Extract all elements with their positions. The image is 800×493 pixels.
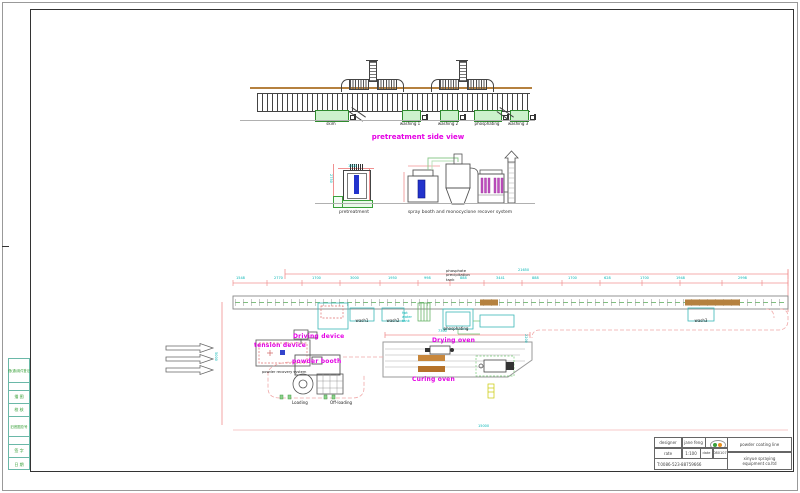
plan-label-wash2: wash2	[382, 319, 404, 324]
oven-outline	[383, 342, 532, 377]
dim-text: 2750	[329, 174, 333, 183]
curing-burner	[476, 356, 514, 376]
revision-row: 描 图	[9, 391, 29, 404]
tension-device-label: tension device	[254, 342, 306, 349]
chain-dim: 1948	[676, 276, 685, 280]
heated-segment-2	[685, 300, 740, 306]
logo-orange-dot	[718, 443, 722, 447]
tank-label-washing2: washing 2	[428, 122, 468, 127]
chain-dim: 1548	[236, 276, 245, 280]
booth-hood	[413, 170, 433, 176]
arrow-icon	[166, 344, 213, 353]
logo-cell	[705, 437, 728, 448]
border-mid-tick	[2, 246, 9, 247]
ground-line-mid	[315, 203, 535, 204]
filter-cartridges	[481, 178, 503, 193]
dim-total-text: 21650	[518, 268, 529, 272]
phone-cell: T:0086-523-88759666	[654, 458, 728, 470]
powder-recovery-label: powder recovery system	[262, 370, 306, 374]
spray-system-drawing	[402, 150, 532, 206]
plan-tanks	[318, 303, 714, 329]
revision-row	[9, 383, 29, 391]
drying-oven-label: Drying oven	[432, 337, 475, 344]
chain-dim: 3000	[350, 276, 359, 280]
arrow-icon	[166, 355, 213, 364]
tank-label-washing1: washing 1	[390, 122, 430, 127]
drawing-sheet: skim washing 1 washing 2 phosphating was…	[0, 0, 800, 493]
chain-dim: 1700	[312, 276, 321, 280]
revision-row: 借(通)用件登记	[9, 359, 29, 383]
bottom-dim-text: 15000	[478, 424, 489, 428]
chain-dim: 2998	[738, 276, 747, 280]
left-dim-text: 5000	[214, 352, 218, 361]
duct-left	[349, 79, 369, 90]
side-unit	[333, 196, 343, 208]
skim-tank-plan	[318, 303, 348, 329]
chain-dim: 1700	[640, 276, 649, 280]
tank-label-washing3: washing 3	[498, 122, 538, 127]
chain-dim: 3441	[496, 276, 505, 280]
burner-duct-1	[418, 355, 445, 361]
right-dim-text: 2200	[524, 334, 528, 343]
offloading-label: Off-loading	[330, 401, 352, 406]
title-block: designer jane feng rate 1:100 date 08010…	[654, 437, 792, 470]
precipitation-note: phosphate precipitation tank	[446, 269, 470, 282]
loading-loop-path	[268, 362, 364, 398]
curing-oven-label: Curing oven	[412, 376, 455, 383]
exhaust-stack	[369, 61, 377, 82]
duct	[470, 168, 478, 174]
chain-dim: 1700	[568, 276, 577, 280]
arrow-icon	[166, 366, 213, 375]
revision-row: 旧底图总号	[9, 417, 29, 437]
powder-booth-label: powder booth	[292, 358, 341, 365]
revision-table: 借(通)用件登记 描 图 校 核 旧底图总号 签 字 日 期	[8, 358, 30, 470]
elbow-left	[341, 79, 351, 92]
chain-dim: 628	[604, 276, 611, 280]
plan-label-wash3: wash3	[688, 319, 714, 324]
elbow-left	[431, 79, 441, 92]
conveyor-return-right	[532, 309, 788, 338]
duct-left	[439, 79, 459, 90]
company-line2: equipment co.ltd	[743, 461, 777, 466]
plan-label-phosphating: phosphating	[438, 327, 474, 332]
logo-green-dot	[713, 443, 717, 447]
elbow-right	[484, 79, 494, 92]
pretreatment-label: pretreatment	[324, 210, 384, 215]
dim-text: 1500	[348, 164, 357, 168]
sub-tank-plan	[480, 315, 514, 327]
stack-rungs	[508, 163, 515, 198]
skim-agitator	[321, 306, 343, 318]
exhaust-assembly-2	[431, 60, 493, 93]
cyclone-cone	[446, 188, 470, 204]
cyclone-body	[446, 164, 470, 188]
exhaust-stack	[459, 61, 467, 82]
tank-base	[341, 200, 373, 208]
filter-cap	[480, 170, 502, 174]
loading-label: Loading	[292, 401, 308, 406]
powder-recovery-drawing	[293, 374, 343, 394]
rate-label-cell: rate	[654, 448, 682, 459]
heated-segment-1	[480, 300, 498, 306]
driving-device-label: Driving device	[293, 333, 344, 340]
conveyor-return-arc2	[766, 309, 774, 318]
designer-name-cell: jane feng	[682, 437, 706, 448]
side-view-title: pretreatment side view	[348, 133, 488, 141]
revision-row	[9, 437, 29, 445]
revision-row: 校 核	[9, 404, 29, 417]
burner-duct-2	[418, 366, 445, 372]
workpiece	[354, 175, 359, 194]
designer-label-cell: designer	[654, 437, 682, 448]
elbow-right	[394, 79, 404, 92]
revision-row: 日 期	[9, 458, 29, 471]
yellow-chimney	[488, 384, 494, 398]
tank-label-skim: skim	[311, 122, 351, 127]
chain-dim: 2770	[274, 276, 283, 280]
exhaust-stack	[508, 158, 515, 203]
drying-burner	[425, 346, 454, 354]
plan-label-wash1: wash1	[350, 319, 374, 324]
spray-system-label: spray booth and monocyclone recover syst…	[390, 210, 530, 215]
date-label-cell: date	[700, 448, 713, 459]
rate-value-cell: 1:100	[682, 448, 701, 459]
product-cell: powder coating line	[727, 437, 792, 452]
chain-dim: 1950	[388, 276, 397, 280]
booth-workpiece	[418, 180, 425, 198]
plan-linework	[220, 262, 795, 440]
chain-dim: 888	[532, 276, 539, 280]
company-cell: xinyue spraying equipment co.ltd	[727, 452, 792, 471]
exhaust-assembly-1	[341, 60, 403, 93]
revision-row: 签 字	[9, 445, 29, 458]
green-pipe	[432, 161, 454, 170]
up-arrow-icon	[505, 151, 518, 162]
date-value-cell: 080107	[713, 448, 728, 459]
chain-dim: 998	[424, 276, 431, 280]
